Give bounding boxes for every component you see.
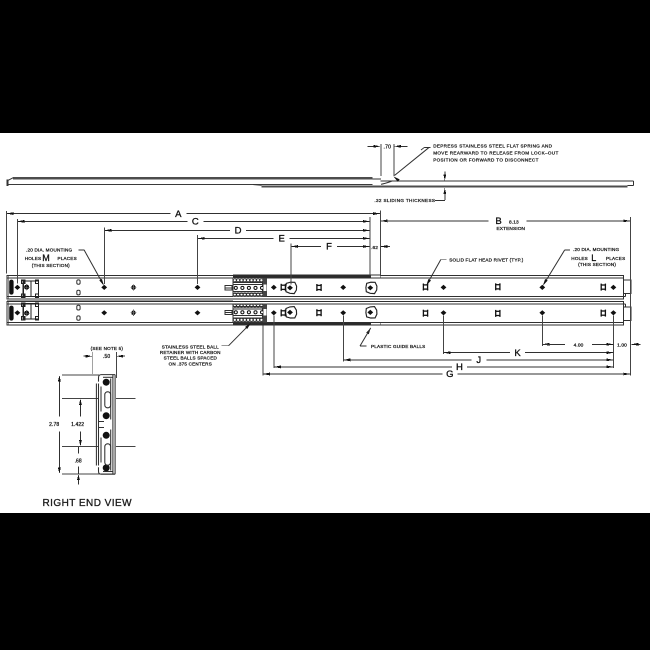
svg-text:HOLES: HOLES — [25, 256, 42, 261]
svg-text:(THIS SECTION): (THIS SECTION) — [32, 263, 70, 268]
svg-text:J: J — [476, 355, 481, 366]
svg-text:.68: .68 — [75, 459, 82, 465]
svg-text:STAINLESS STEEL BALL: STAINLESS STEEL BALL — [162, 344, 219, 349]
svg-text:PLASTIC GUIDE BALLS: PLASTIC GUIDE BALLS — [371, 344, 425, 349]
svg-text:RIGHT END VIEW: RIGHT END VIEW — [43, 498, 133, 509]
svg-text:8.13: 8.13 — [509, 220, 519, 226]
svg-text:E: E — [279, 234, 285, 245]
svg-text:1.422: 1.422 — [71, 422, 84, 428]
svg-text:A: A — [175, 209, 182, 220]
svg-text:.20 DIA. MOUNTING: .20 DIA. MOUNTING — [26, 248, 73, 253]
svg-text:ON .375 CENTERS: ON .375 CENTERS — [169, 361, 212, 366]
svg-text:G: G — [446, 369, 453, 380]
svg-text:(THIS SECTION): (THIS SECTION) — [578, 262, 616, 267]
svg-text:D: D — [235, 226, 242, 237]
svg-text:.50: .50 — [103, 354, 110, 360]
svg-text:K: K — [514, 348, 521, 359]
svg-text:4.00: 4.00 — [574, 342, 584, 348]
svg-text:F: F — [326, 242, 332, 253]
svg-text:.62: .62 — [371, 245, 378, 251]
svg-text:HOLES: HOLES — [571, 256, 588, 261]
svg-text:H: H — [456, 362, 463, 373]
svg-text:B: B — [495, 216, 501, 227]
svg-text:MOVE REARWARD TO RELEASE FROM: MOVE REARWARD TO RELEASE FROM LOCK–OUT — [433, 151, 558, 156]
svg-text:POSITION OR FORWARD TO DISCONN: POSITION OR FORWARD TO DISCONNECT — [433, 158, 539, 163]
svg-text:PLACES: PLACES — [606, 256, 625, 261]
svg-text:EXTENSION: EXTENSION — [497, 226, 526, 232]
svg-text:.32 SLIDING THICKNESS: .32 SLIDING THICKNESS — [374, 198, 435, 203]
svg-text:SOLID FLAT HEAD RIVET (TYP.): SOLID FLAT HEAD RIVET (TYP.) — [449, 257, 523, 262]
svg-text:1.00: 1.00 — [617, 342, 627, 348]
svg-text:.70: .70 — [384, 144, 392, 150]
svg-text:M: M — [42, 253, 50, 263]
svg-text:STEEL BALLS SPACED: STEEL BALLS SPACED — [164, 356, 218, 361]
svg-text:DEPRESS STAINLESS STEEL FLAT S: DEPRESS STAINLESS STEEL FLAT SPRING AND — [433, 143, 552, 148]
svg-text:RETAINER WITH CARBON: RETAINER WITH CARBON — [160, 350, 221, 355]
svg-text:C: C — [192, 217, 199, 228]
svg-text:.20 DIA. MOUNTING: .20 DIA. MOUNTING — [573, 247, 620, 252]
svg-text:(SEE NOTE 5): (SEE NOTE 5) — [91, 346, 124, 351]
svg-text:PLACES: PLACES — [58, 256, 77, 261]
svg-text:2.78: 2.78 — [49, 422, 59, 428]
